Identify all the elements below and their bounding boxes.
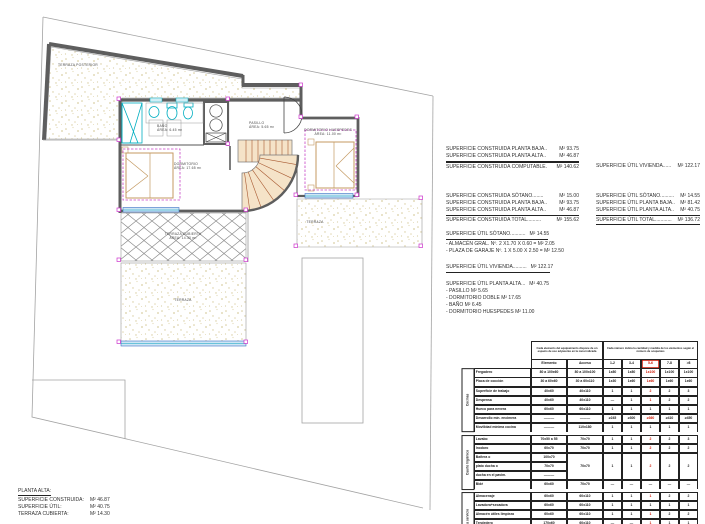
table-cell: Cada elemento del equipamiento dispone d… (531, 341, 604, 360)
footer-row: SUPERFICIE ÚTIL:M² 40.75 (18, 504, 110, 511)
summary-line: SUPERFICIE CONSTRUIDA PLANTA BAJA..M² 93… (446, 146, 579, 153)
staircase (238, 140, 298, 211)
table-cell: 2 (641, 453, 661, 481)
label-pasillo: PASILLOÁREA: 5.65 m² (249, 121, 274, 129)
block-util-vivienda-top: SUPERFICIE ÚTIL VIVIENDA...... M² 122.17 (596, 163, 700, 170)
summary-line: SUPERFICIE CONSTRUIDA SÓTANO........M² 1… (446, 193, 579, 200)
table-cell: 170x60 (531, 519, 568, 524)
table-cell: Bidé (474, 480, 532, 490)
table-cell: Cocinas (462, 368, 475, 432)
habitability-table: Cada elemento del equipamiento dispone d… (462, 341, 700, 524)
table-cell: 60x110 (567, 519, 604, 524)
shaft (204, 102, 228, 144)
label-terraza-bottom: TERRAZA (160, 298, 206, 302)
label-terraza-cubierta: TERRAZA CUBIERTAÁREA: 14.30 m² (152, 232, 214, 240)
label-terraza-posterior: TERRAZA POSTERIOR (58, 63, 120, 67)
bed-main (122, 147, 173, 198)
table-cell: 1 (622, 423, 642, 433)
block-util-total: SUPERFICIE ÚTIL SÓTANO..........M² 14.55… (596, 193, 700, 225)
label-terraza-right: TERRAZA (292, 220, 338, 224)
table-cell: 1 (660, 423, 680, 433)
table-cell: 1 (641, 519, 661, 524)
table-cell: — (641, 480, 661, 490)
table-cell: Cuarto higiénico (462, 435, 475, 490)
table-cell: — (679, 480, 699, 490)
table-cell: 1 (603, 453, 623, 481)
terraza-area-bottom (121, 263, 246, 343)
table-cell: 2 (679, 453, 699, 481)
table-cell: 70x70 (567, 480, 604, 490)
table-cell: Tendedero (474, 519, 532, 524)
table-cell: 1 (641, 423, 661, 433)
label-dormitorio-huespedes: DORMITORIO HUESPEDESÁREA: 11.00 m² (296, 128, 360, 136)
footer-planta-alta: PLANTA ALTA: SUPERFICIE CONSTRUIDA:M² 46… (18, 488, 110, 518)
pool-outline (302, 258, 363, 423)
bed-guest (308, 139, 354, 191)
drawing-sheet: TERRAZA POSTERIOR BAÑOÁREA: 6.45 m² DORM… (0, 0, 705, 524)
table-cell: 110x180 (567, 423, 604, 433)
table-cell: — (660, 480, 680, 490)
footer-row: SUPERFICIE CONSTRUIDA:M² 46.87 (18, 497, 110, 504)
block-util-sotano: SUPERFICIE ÚTIL SÓTANO........... M² 14.… (446, 231, 586, 255)
summary-item: - DORMITORIO HUESPEDES M² 11.00 (446, 309, 586, 316)
table-cell: 1 (679, 423, 699, 433)
block-util-vivienda-mid: SUPERFICIE ÚTIL VIVIENDA.......... M² 12… (446, 264, 586, 274)
summary-item: - DORMITORIO DOBLE M² 17.65 (446, 295, 586, 302)
table-cell: Pieza servicio (462, 492, 475, 524)
block-construida-total: SUPERFICIE CONSTRUIDA SÓTANO........M² 1… (446, 193, 579, 224)
habitability-table-header: Cada elemento del equipamiento dispone d… (531, 341, 700, 369)
table-cell: Movilidad mínima cocina (474, 423, 532, 433)
summary-line: SUPERFICIE CONSTRUIDA PLANTA ALTA..M² 46… (446, 153, 579, 160)
block-util-planta-alta: SUPERFICIE ÚTIL PLANTA ALTA... M² 40.75 … (446, 281, 586, 316)
summary-item: - BAÑO M² 6.45 (446, 302, 586, 309)
summary-line: SUPERFICIE ÚTIL PLANTA ALTA..M² 40.75 (596, 207, 700, 214)
table-cell: ——— (531, 423, 568, 433)
summary-item: - PLAZA DE GARAJE Nº. 1 X 5.00 X 2.50 = … (446, 248, 586, 255)
summary-item: - ALMACÉN GRAL. Nº. 2 X1.70 X 0.60 = M² … (446, 241, 586, 248)
table-cell: 1 (660, 519, 680, 524)
table-cell: 1 (603, 423, 623, 433)
footer-title: PLANTA ALTA: (18, 488, 51, 496)
table-cell: — (603, 519, 623, 524)
label-bano: BAÑOÁREA: 6.45 m² (157, 124, 182, 132)
footer-row: TERRAZA CUBIERTA:M² 14.30 (18, 511, 110, 518)
table-cell: 60x60 (531, 480, 568, 490)
construida-computable-total: SUPERFICIE CONSTRUIDA COMPUTABLE. M² 140… (446, 164, 579, 171)
summary-line: SUPERFICIE ÚTIL PLANTA BAJA..M² 81.42 (596, 200, 700, 207)
table-cell: 1 (679, 519, 699, 524)
habitability-table-body: CocinasFregadero80 a 100x6080 a 100x1001… (462, 369, 700, 524)
summary-item: - PASILLO M² 5.65 (446, 288, 586, 295)
label-dormitorio: DORMITORIOÁREA: 17.65 m² (174, 162, 201, 170)
summary-line: SUPERFICIE CONSTRUIDA PLANTA BAJA..M² 93… (446, 200, 579, 207)
table-cell: — (603, 480, 623, 490)
table-cell: — (622, 519, 642, 524)
summary-line: SUPERFICIE ÚTIL SÓTANO..........M² 14.55 (596, 193, 700, 200)
table-cell: 70x70 (567, 453, 604, 481)
table-cell: — (622, 480, 642, 490)
table-cell: 2 (660, 453, 680, 481)
table-cell: Cada número indica la cantidad y medida … (603, 341, 699, 360)
block-construida-computable: SUPERFICIE CONSTRUIDA PLANTA BAJA..M² 93… (446, 146, 579, 171)
summary-line: SUPERFICIE CONSTRUIDA PLANTA ALTA..M² 46… (446, 207, 579, 214)
table-cell: 1 (622, 453, 642, 481)
